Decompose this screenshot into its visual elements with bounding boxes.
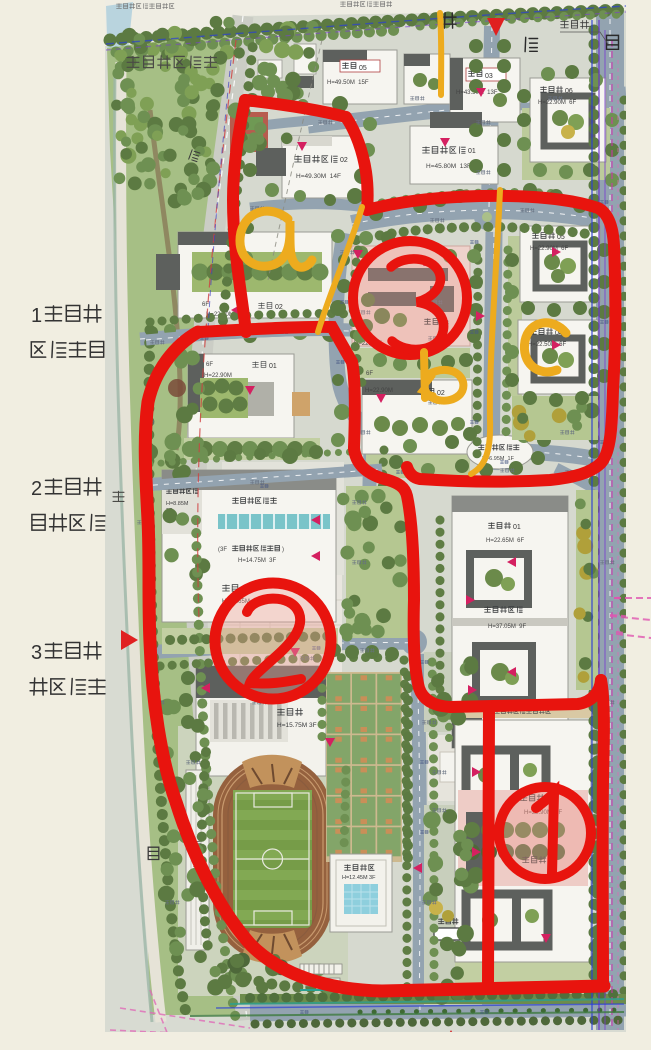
svg-text:H=22.90M 6F: H=22.90M 6F [538,100,577,106]
svg-text:-: - [588,21,591,31]
svg-text:1: 1 [31,305,42,327]
svg-text:2: 2 [31,478,42,500]
svg-text:H=14.75M 3F: H=14.75M 3F [238,558,277,564]
svg-text:03: 03 [485,73,493,80]
svg-text:05: 05 [359,65,367,72]
svg-text:H=45.80M 13F: H=45.80M 13F [426,163,471,170]
svg-text:H=12.45M 3F: H=12.45M 3F [342,875,376,881]
svg-text:H=22.90M: H=22.90M [204,373,232,379]
svg-text:3: 3 [31,642,42,664]
svg-text:H=49.50M 15F: H=49.50M 15F [327,80,369,86]
svg-text:H=22.65M 6F: H=22.65M 6F [486,538,525,544]
svg-text:H=49.30M 14F: H=49.30M 14F [296,173,341,180]
svg-text:H=15.75M 3F: H=15.75M 3F [277,722,317,729]
svg-text:H=22.90M 6F: H=22.90M 6F [530,246,569,252]
svg-text:6F: 6F [206,362,213,368]
svg-text:01: 01 [513,524,521,531]
svg-text:02: 02 [340,157,348,164]
svg-text:H=8.85M: H=8.85M [166,501,189,507]
svg-text:(3F: (3F [218,547,227,553]
svg-text:H=22.90M: H=22.90M [365,388,393,394]
svg-text:01: 01 [269,363,277,370]
svg-text:06: 06 [565,88,573,95]
svg-text:H=37.05M 9F: H=37.05M 9F [488,624,527,630]
svg-text:6F: 6F [202,302,209,308]
svg-text:01: 01 [468,148,476,155]
svg-text:6F: 6F [366,371,373,377]
svg-text:): ) [282,547,284,553]
